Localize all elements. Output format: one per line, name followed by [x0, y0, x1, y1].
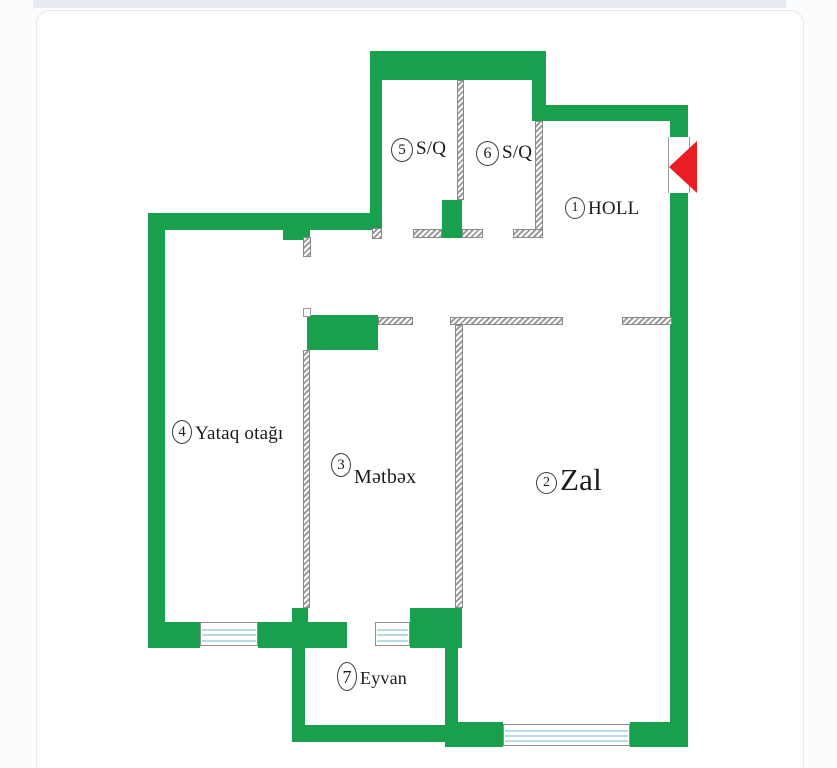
right-wall — [670, 193, 688, 747]
hall-top-wall — [532, 105, 688, 121]
bedroom-door-top-jamb — [303, 237, 311, 257]
living-window — [503, 724, 630, 746]
window-glass-line — [505, 735, 628, 737]
entrance-arrow-icon — [669, 141, 697, 193]
room-name: S/Q — [502, 143, 532, 164]
sq6-hall-wall — [535, 121, 543, 238]
living-bottom-wall-left — [445, 722, 503, 747]
window-glass-line — [505, 730, 628, 732]
kitchen-window — [375, 622, 410, 646]
balcony-bottom-wall — [292, 725, 458, 742]
bedroom-kitchen-wall — [303, 350, 310, 608]
sq-bottom-wall-3 — [513, 229, 543, 238]
bedroom-bottom-wall-right — [258, 622, 292, 648]
balcony-label: 7Eyvan — [337, 662, 407, 691]
corridor-wall-2 — [450, 317, 563, 325]
room-name: Yataq otağı — [195, 424, 283, 445]
room-number-badge: 4 — [172, 420, 192, 444]
kitchen-corner-block — [307, 315, 378, 350]
room-name: HOLL — [588, 199, 639, 220]
room-name: Eyvan — [360, 669, 407, 689]
room-number-badge: 1 — [565, 197, 585, 219]
left-wall — [148, 213, 165, 647]
living-label: 2Zal — [536, 463, 602, 497]
corridor-wall-1 — [378, 317, 413, 325]
sq5-label: 5S/Q — [391, 138, 446, 162]
kitchen-bottom-wall-right-block — [410, 608, 462, 648]
living-bottom-wall-right — [630, 722, 687, 747]
bedroom-wall-endcap — [303, 308, 311, 317]
sq-partition-wall — [457, 80, 464, 200]
kitchen-living-wall — [455, 325, 463, 608]
sq-top-wall — [370, 51, 546, 80]
window-glass-line — [377, 629, 408, 631]
window-glass-line — [505, 740, 628, 742]
room-number-badge: 5 — [391, 138, 413, 162]
sq6-label: 6S/Q — [476, 141, 532, 166]
bedroom-top-wall — [148, 213, 378, 230]
floor-plan: 5S/Q6S/Q1HOLL4Yataq otağı3Mətbəx2Zal7Eyv… — [0, 0, 837, 768]
room-number-badge: 2 — [536, 472, 557, 494]
sq-bottom-wall-1 — [413, 229, 442, 238]
kitchen-label: 3Mətbəx — [331, 453, 416, 488]
sq-partition-block — [442, 200, 462, 238]
window-glass-line — [377, 634, 408, 636]
window-glass-line — [377, 640, 408, 642]
bedroom-bottom-wall-left — [148, 622, 200, 648]
room-name: Mətbəx — [354, 466, 416, 488]
kitchen-bottom-wall-left — [308, 622, 347, 648]
window-glass-line — [202, 640, 256, 642]
sq-left-wall — [370, 80, 382, 230]
hall-living-wall — [622, 317, 672, 325]
window-glass-line — [202, 634, 256, 636]
room-number-badge: 3 — [331, 453, 351, 477]
sq-bottom-wall-2 — [462, 229, 483, 238]
room-name: Zal — [560, 463, 602, 497]
room-name: S/Q — [416, 139, 446, 160]
window-glass-line — [202, 629, 256, 631]
hall-label: 1HOLL — [565, 197, 639, 220]
bedroom-window — [200, 622, 258, 646]
bedroom-label: 4Yataq otağı — [172, 420, 283, 445]
balcony-left-junction-block — [292, 608, 308, 648]
room-number-badge: 7 — [337, 662, 357, 691]
room-number-badge: 6 — [476, 141, 499, 166]
screenshot-root: 5S/Q6S/Q1HOLL4Yataq otağı3Mətbəx2Zal7Eyv… — [0, 0, 837, 768]
right-wall-above-entrance — [670, 105, 688, 137]
sq5-door-left-jamb — [372, 228, 382, 239]
